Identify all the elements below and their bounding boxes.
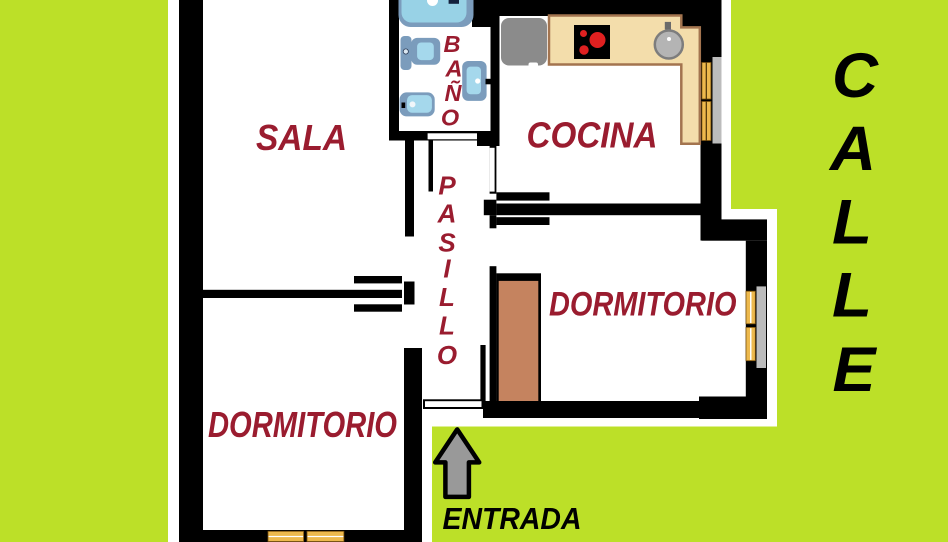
svg-text:SALA: SALA xyxy=(256,117,347,158)
svg-text:O: O xyxy=(441,104,459,130)
svg-text:E: E xyxy=(833,335,878,405)
svg-text:A: A xyxy=(828,114,876,184)
svg-text:L: L xyxy=(832,188,872,258)
svg-text:L: L xyxy=(832,261,872,331)
svg-text:L: L xyxy=(439,282,455,312)
svg-text:DORMITORIO: DORMITORIO xyxy=(208,404,397,445)
svg-text:L: L xyxy=(439,310,455,340)
svg-text:P: P xyxy=(438,171,456,201)
svg-text:B: B xyxy=(444,31,461,57)
svg-text:COCINA: COCINA xyxy=(527,114,658,155)
svg-text:Ñ: Ñ xyxy=(445,79,463,106)
svg-text:I: I xyxy=(443,254,451,284)
svg-text:ENTRADA: ENTRADA xyxy=(443,501,582,536)
svg-text:A: A xyxy=(445,56,463,82)
svg-text:A: A xyxy=(437,199,457,229)
svg-text:DORMITORIO: DORMITORIO xyxy=(549,285,737,323)
svg-text:O: O xyxy=(437,340,457,370)
svg-text:C: C xyxy=(832,41,880,111)
